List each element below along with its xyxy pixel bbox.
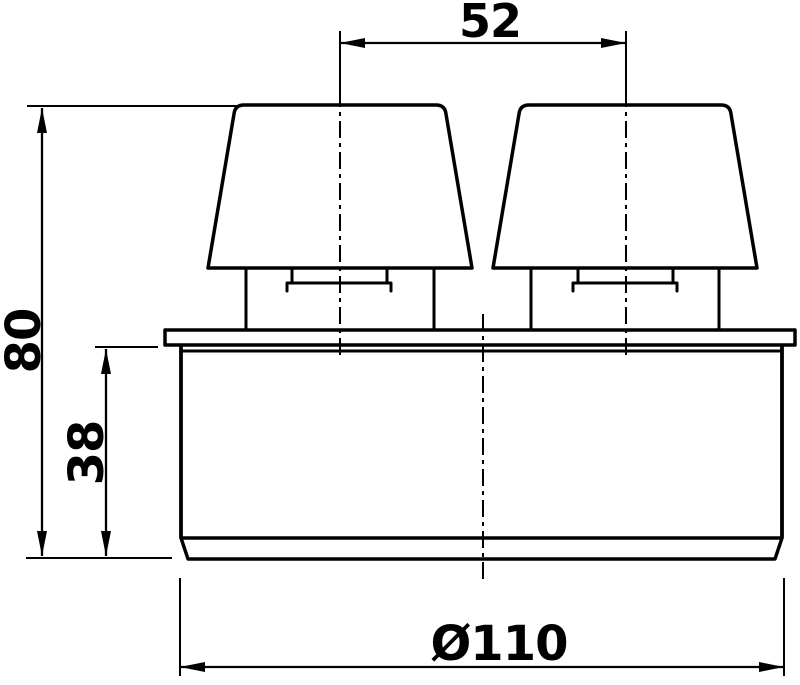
- dimension-diameter: Ø110: [180, 578, 784, 676]
- arrowhead-top: [101, 349, 111, 374]
- diameter-dimension-label: Ø110: [431, 616, 568, 672]
- dimension-cap-spacing: 52: [340, 0, 626, 90]
- arrowhead-left: [340, 38, 365, 48]
- socket-height-dimension-label: 38: [59, 421, 115, 486]
- arrowhead-right: [601, 38, 626, 48]
- arrowhead-bottom: [101, 531, 111, 556]
- arrowhead-bottom: [37, 531, 47, 556]
- arrowhead-left: [180, 662, 205, 672]
- arrowhead-top: [37, 108, 47, 133]
- socket-rim: [181, 538, 782, 559]
- flange-plate: [165, 330, 795, 345]
- vent-part: [165, 105, 795, 559]
- drawing-svg: 52 80 38 Ø110: [0, 0, 800, 680]
- arrowhead-right: [759, 662, 784, 672]
- cap-spacing-dimension-label: 52: [459, 0, 521, 48]
- dimension-socket-height: 38: [59, 347, 158, 556]
- overall-height-dimension-label: 80: [0, 309, 52, 374]
- socket-walls: [181, 345, 782, 538]
- technical-drawing-canvas: 52 80 38 Ø110: [0, 0, 800, 680]
